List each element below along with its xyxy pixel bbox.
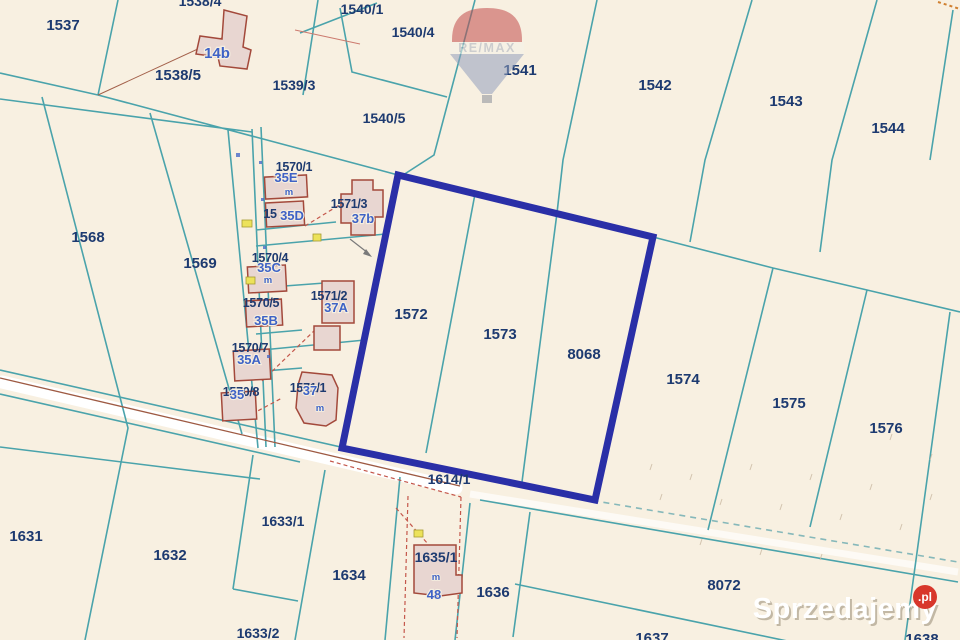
- parcel-label-1635-1: 1635/1: [415, 549, 458, 565]
- parcel-label-1540-5: 1540/5: [363, 110, 406, 126]
- parcel-label-1537: 1537: [46, 17, 79, 34]
- parcel-label-1571-3: 1571/3: [331, 197, 368, 211]
- parcel-label-1614-1: 1614/1: [428, 471, 471, 487]
- parcel-label-8072: 8072: [707, 577, 740, 594]
- orange-dashed-corner: [938, 2, 960, 9]
- parcel-label-1544: 1544: [871, 120, 905, 137]
- building-label-35b: 35B: [254, 313, 278, 328]
- parcel-label-1543: 1543: [769, 93, 802, 110]
- parcel-label-1570-5: 1570/5: [243, 296, 280, 310]
- watermark-text: Sprzedajemy: [753, 593, 937, 625]
- parcel-label-1575: 1575: [772, 395, 805, 412]
- building-label-35d: 35D: [280, 208, 304, 223]
- map-canvas: 1537 1538/4 1538/5 1539/3 1540/1 1540/4 …: [0, 0, 960, 640]
- building-label-35c: 35C: [257, 260, 281, 275]
- building-label-14b: 14b: [204, 45, 230, 62]
- building-label-m-48: m: [432, 572, 440, 583]
- parcel-label-1539-3: 1539/3: [273, 77, 316, 93]
- parcel-label-1576: 1576: [869, 420, 902, 437]
- building-label-m-35c: m: [264, 275, 272, 286]
- parcel-label-1569: 1569: [183, 255, 216, 272]
- building-37a-annex: [314, 326, 340, 350]
- parcel-label-1632: 1632: [153, 547, 186, 564]
- parcel-label-1542: 1542: [638, 77, 671, 94]
- remax-logo: RE/MAX: [450, 8, 524, 103]
- remax-logo-text: RE/MAX: [458, 41, 516, 55]
- building-label-35a: 35A: [237, 352, 261, 367]
- building-label-37b: 37b: [352, 211, 374, 226]
- parcel-label-1540-4: 1540/4: [392, 24, 435, 40]
- building-label-m-35e: m: [285, 187, 293, 198]
- parcel-label-1573: 1573: [483, 326, 516, 343]
- remax-balloon-basket: [482, 95, 492, 103]
- parcel-label-1634: 1634: [332, 567, 366, 584]
- building-label-35: 35: [230, 387, 244, 402]
- building-label-37a: 37A: [324, 300, 348, 315]
- building-label-48: 48: [427, 587, 441, 602]
- parcel-label-1538-5: 1538/5: [155, 67, 201, 84]
- building-label-m-37-1: m: [316, 403, 324, 414]
- parcel-label-1574: 1574: [666, 371, 700, 388]
- parcel-label-1568: 1568: [71, 229, 104, 246]
- parcel-label-1570-3: 15: [263, 207, 277, 221]
- parcel-label-1631: 1631: [9, 528, 42, 545]
- building-label-35e: 35E: [274, 170, 297, 185]
- parcel-label-1636: 1636: [476, 584, 509, 601]
- cadastral-map: 1537 1538/4 1538/5 1539/3 1540/1 1540/4 …: [0, 0, 960, 640]
- parcel-label-1633-1: 1633/1: [262, 513, 305, 529]
- meadow-ticks: [650, 434, 932, 560]
- remax-balloon-top: [452, 8, 522, 42]
- parcel-label-1633-2: 1633/2: [237, 625, 280, 640]
- watermark-tld: .pl: [918, 590, 932, 604]
- boundary-dashed-road: [560, 495, 958, 562]
- parcel-label-1572: 1572: [394, 306, 427, 323]
- small-red-line: [295, 30, 360, 44]
- parcel-label-1538-4: 1538/4: [179, 0, 222, 9]
- parcel-label-1637: 1637: [635, 630, 668, 640]
- building-label-37: 37: [303, 383, 317, 398]
- parcel-label-1540-1: 1540/1: [341, 1, 384, 17]
- parcel-label-8068: 8068: [567, 346, 600, 363]
- parcel-label-1638: 1638: [905, 631, 938, 640]
- gray-arrow: [350, 239, 372, 257]
